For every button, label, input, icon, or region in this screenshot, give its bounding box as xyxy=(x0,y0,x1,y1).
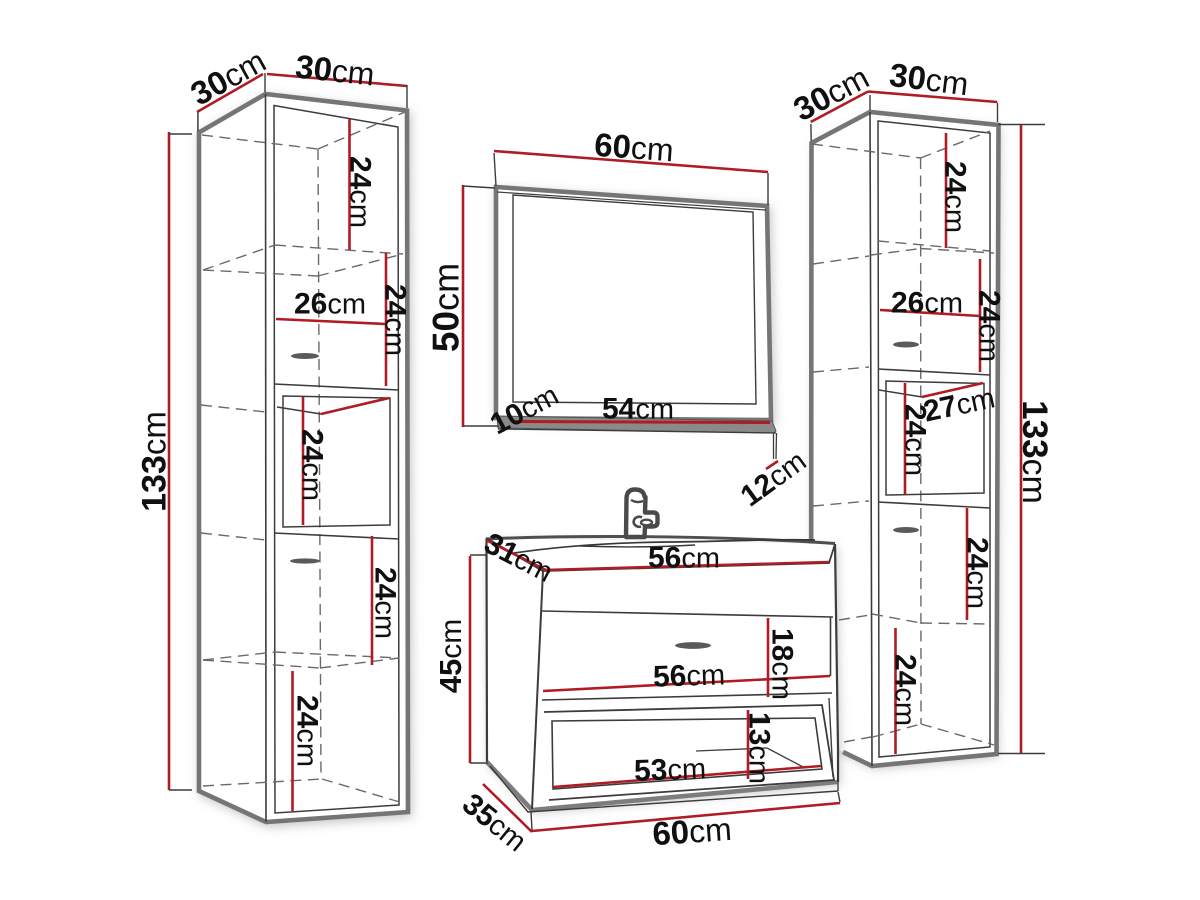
svg-text:24cm: 24cm xyxy=(291,695,324,767)
svg-text:13cm: 13cm xyxy=(743,712,776,784)
svg-text:53cm: 53cm xyxy=(633,752,706,787)
svg-text:24cm: 24cm xyxy=(899,404,932,476)
svg-text:24cm: 24cm xyxy=(973,290,1006,362)
svg-text:56cm: 56cm xyxy=(652,658,725,693)
svg-text:54cm: 54cm xyxy=(602,393,674,426)
svg-text:24cm: 24cm xyxy=(961,537,994,609)
svg-text:26cm: 26cm xyxy=(891,287,963,320)
svg-text:24cm: 24cm xyxy=(369,567,402,639)
svg-text:24cm: 24cm xyxy=(939,161,972,233)
svg-text:133cm: 133cm xyxy=(135,411,173,512)
svg-text:45cm: 45cm xyxy=(433,619,468,693)
svg-text:18cm: 18cm xyxy=(766,628,799,700)
svg-text:24cm: 24cm xyxy=(344,156,377,228)
svg-text:60cm: 60cm xyxy=(593,126,675,168)
svg-text:30cm: 30cm xyxy=(294,48,377,93)
svg-text:50cm: 50cm xyxy=(425,263,466,352)
svg-text:56cm: 56cm xyxy=(648,542,720,575)
svg-text:24cm: 24cm xyxy=(889,654,922,726)
svg-text:24cm: 24cm xyxy=(379,284,412,356)
svg-text:133cm: 133cm xyxy=(1015,400,1054,504)
svg-text:60cm: 60cm xyxy=(651,810,733,852)
svg-text:26cm: 26cm xyxy=(294,288,366,321)
svg-text:24cm: 24cm xyxy=(296,429,329,501)
